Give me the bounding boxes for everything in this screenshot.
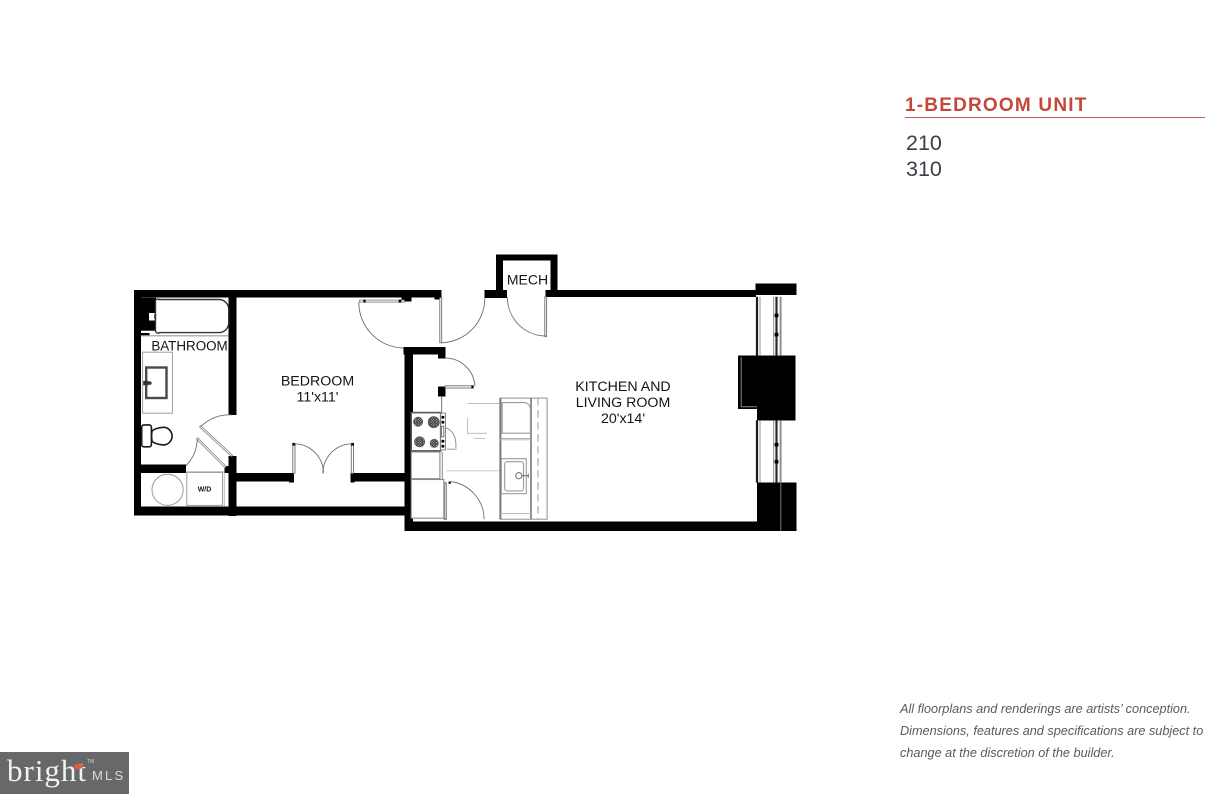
svg-text:W/D: W/D (198, 487, 212, 494)
svg-text:KITCHEN AND: KITCHEN AND (575, 379, 670, 395)
svg-text:20'x14': 20'x14' (601, 411, 645, 427)
svg-text:BATHROOM: BATHROOM (151, 339, 227, 354)
svg-text:LIVING ROOM: LIVING ROOM (576, 395, 671, 411)
svg-text:11'x11': 11'x11' (297, 389, 339, 405)
svg-text:BEDROOM: BEDROOM (281, 373, 354, 389)
svg-text:MECH: MECH (507, 271, 548, 287)
